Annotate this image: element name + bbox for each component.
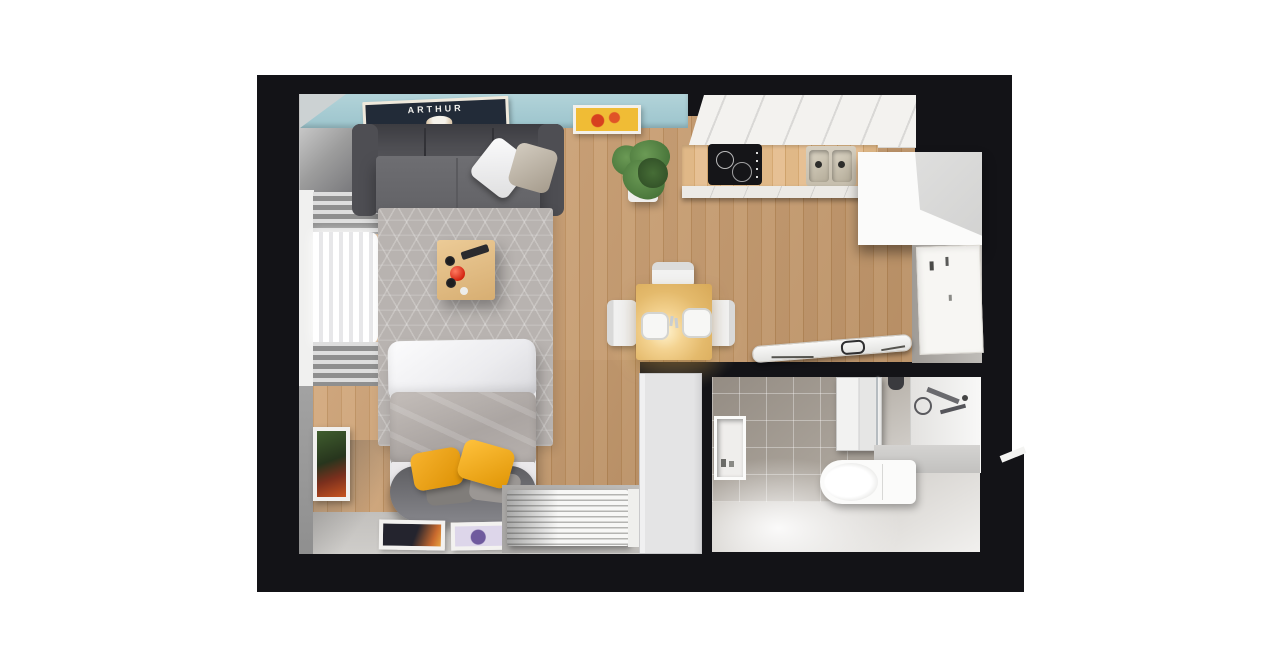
shower-head [888, 377, 904, 390]
drying-rack-leg [881, 345, 905, 351]
door-keyhole [949, 295, 952, 301]
cup [460, 287, 468, 295]
toiletry-bottle [721, 459, 726, 467]
floor-frame-orange [379, 519, 446, 550]
mug [446, 278, 456, 288]
bathroom-door-panel [639, 373, 702, 554]
drying-rack-handle [840, 339, 865, 355]
sink-bowl [809, 150, 829, 182]
drying-rack-leg [772, 356, 814, 358]
wall-art-orange [573, 105, 641, 134]
window-sill [299, 190, 314, 386]
faucet-fixture [914, 397, 932, 415]
toilet [820, 460, 916, 504]
dining-table [636, 284, 712, 360]
sofa-armrest-left [352, 124, 378, 216]
sofa-seat-seam [456, 158, 458, 212]
wall-art-green [313, 427, 350, 501]
toilet-seam [882, 464, 883, 500]
outer-wall-extension [1008, 452, 1024, 592]
potted-plant [612, 140, 674, 206]
hob-controls [756, 152, 758, 178]
cutlery [674, 318, 678, 328]
poster-text: ARTHUR [365, 101, 505, 117]
kitchen-upper-cabinets [688, 95, 916, 148]
kitchen-sink [806, 146, 856, 186]
door-handle [930, 261, 934, 270]
radiator [507, 490, 629, 546]
shower-niche [714, 416, 746, 480]
induction-hob [708, 144, 762, 185]
curtain-sheer [313, 232, 378, 344]
duvet-white [388, 339, 537, 398]
door-hinge [945, 257, 948, 266]
toilet-bowl [824, 463, 878, 501]
toiletry-bottle [729, 461, 734, 467]
sofa-seam [424, 128, 426, 158]
cutlery [669, 316, 673, 326]
plant-foliage [638, 158, 668, 188]
coffee-table [437, 240, 495, 300]
mug [445, 256, 455, 266]
sofa [352, 124, 564, 216]
plate [682, 308, 712, 338]
kitchen-cabinet-front [682, 186, 878, 198]
curtain-gray-bottom [313, 342, 378, 386]
faucet-fixture [962, 395, 968, 401]
sink-bowl [832, 150, 852, 182]
plate [641, 312, 669, 340]
apartment-floor-plan: ARTHUR [0, 0, 1280, 667]
dining-chair-left [607, 300, 637, 346]
wardrobe [858, 152, 982, 245]
entry-door [916, 245, 984, 355]
bathroom [712, 377, 980, 552]
wardrobe-top [858, 152, 982, 245]
remote-control [460, 244, 489, 260]
